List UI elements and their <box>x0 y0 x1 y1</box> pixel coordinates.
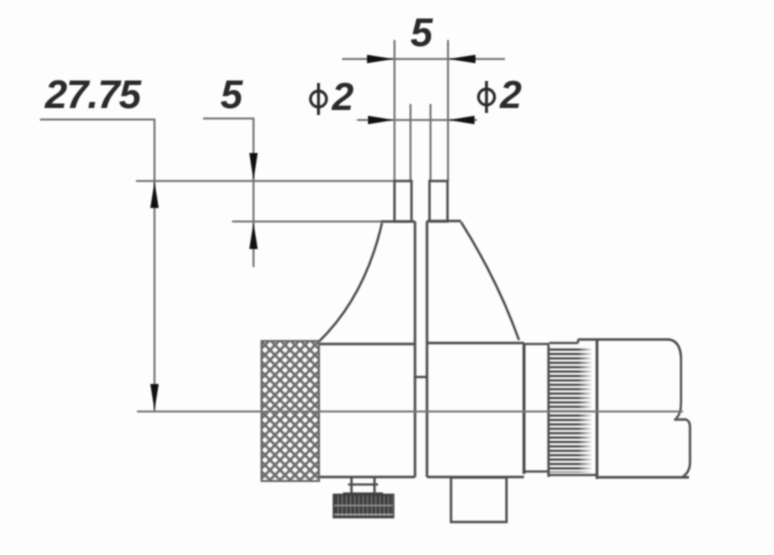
svg-text:2: 2 <box>331 76 354 119</box>
svg-text:5: 5 <box>410 11 433 55</box>
svg-text:27.75: 27.75 <box>44 73 142 117</box>
svg-text:5: 5 <box>220 73 243 117</box>
svg-text:2: 2 <box>499 74 522 117</box>
